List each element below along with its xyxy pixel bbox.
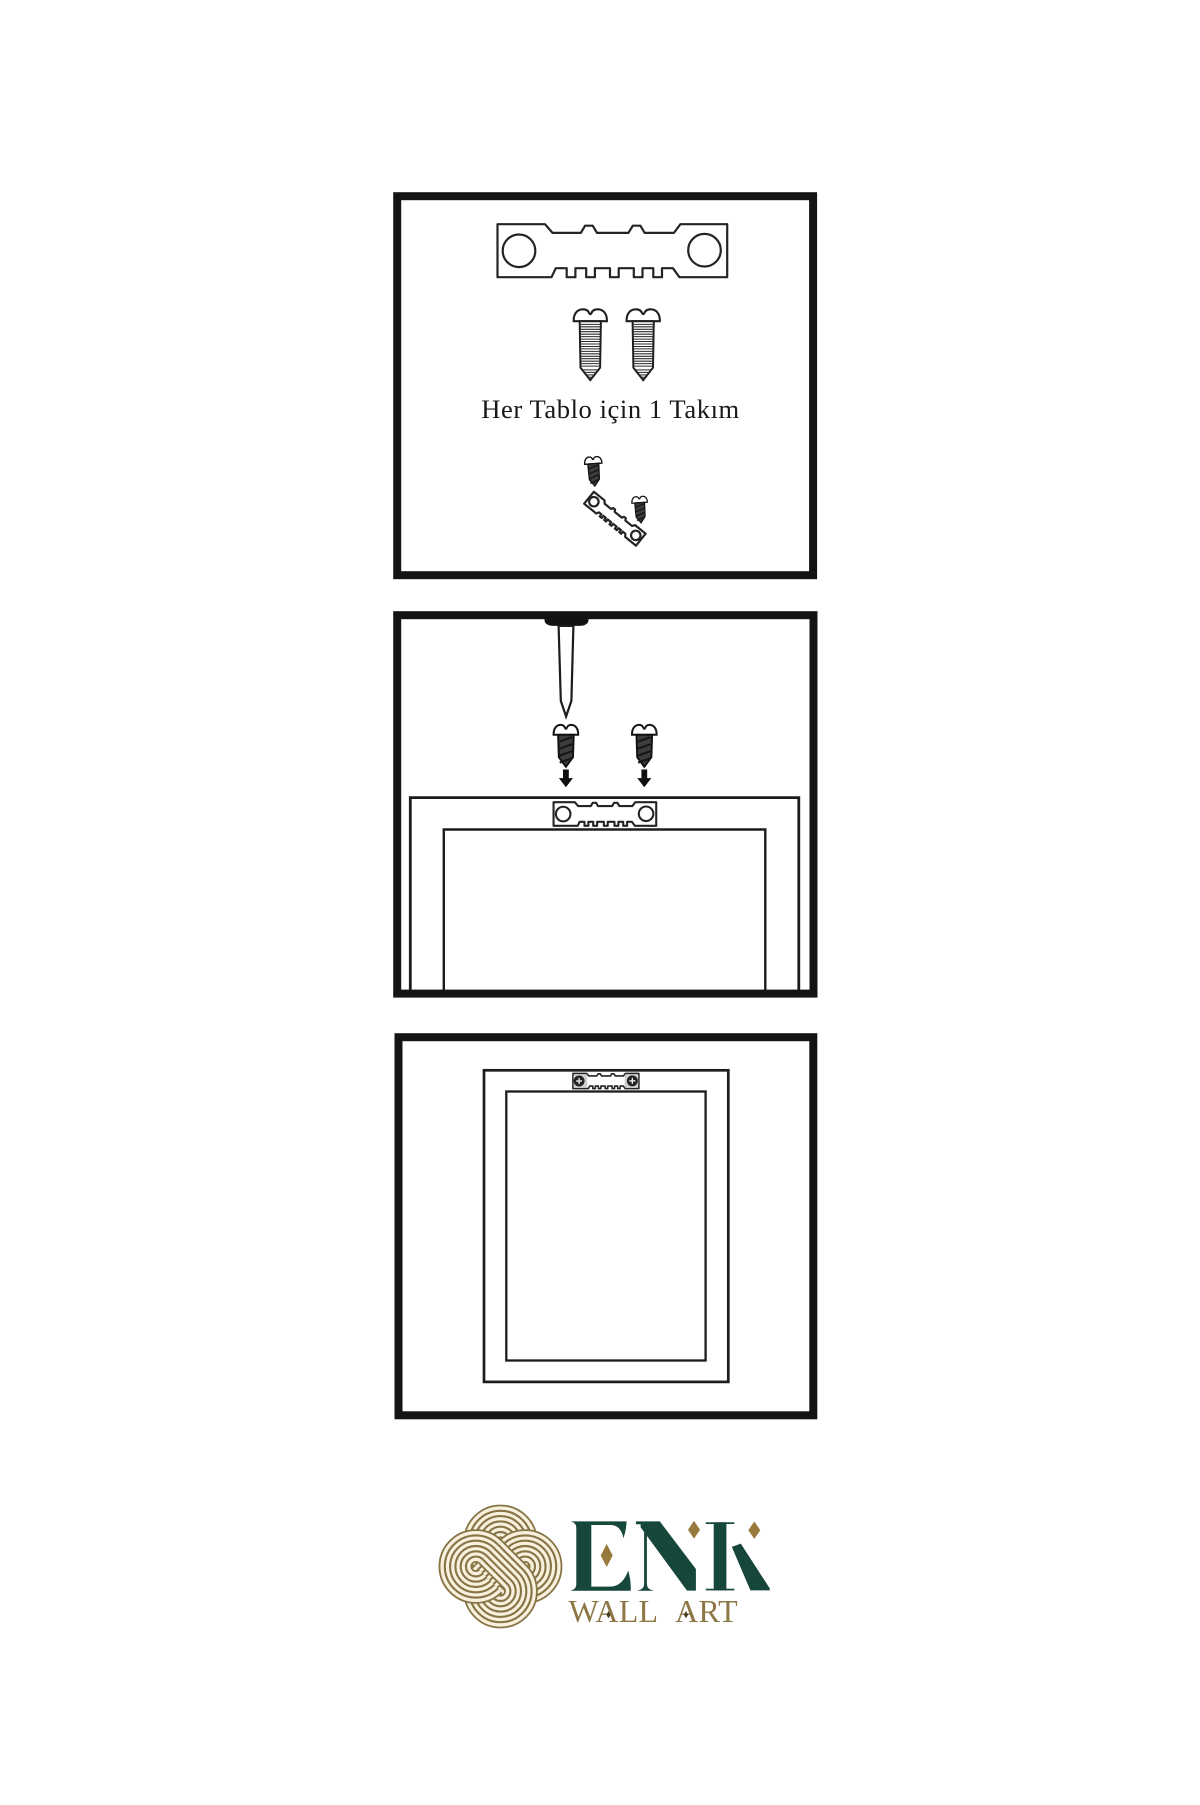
svg-text:Her Tablo için 1 Takım: Her Tablo için 1 Takım bbox=[481, 394, 740, 424]
svg-text:WALL ART: WALL ART bbox=[568, 1593, 738, 1629]
